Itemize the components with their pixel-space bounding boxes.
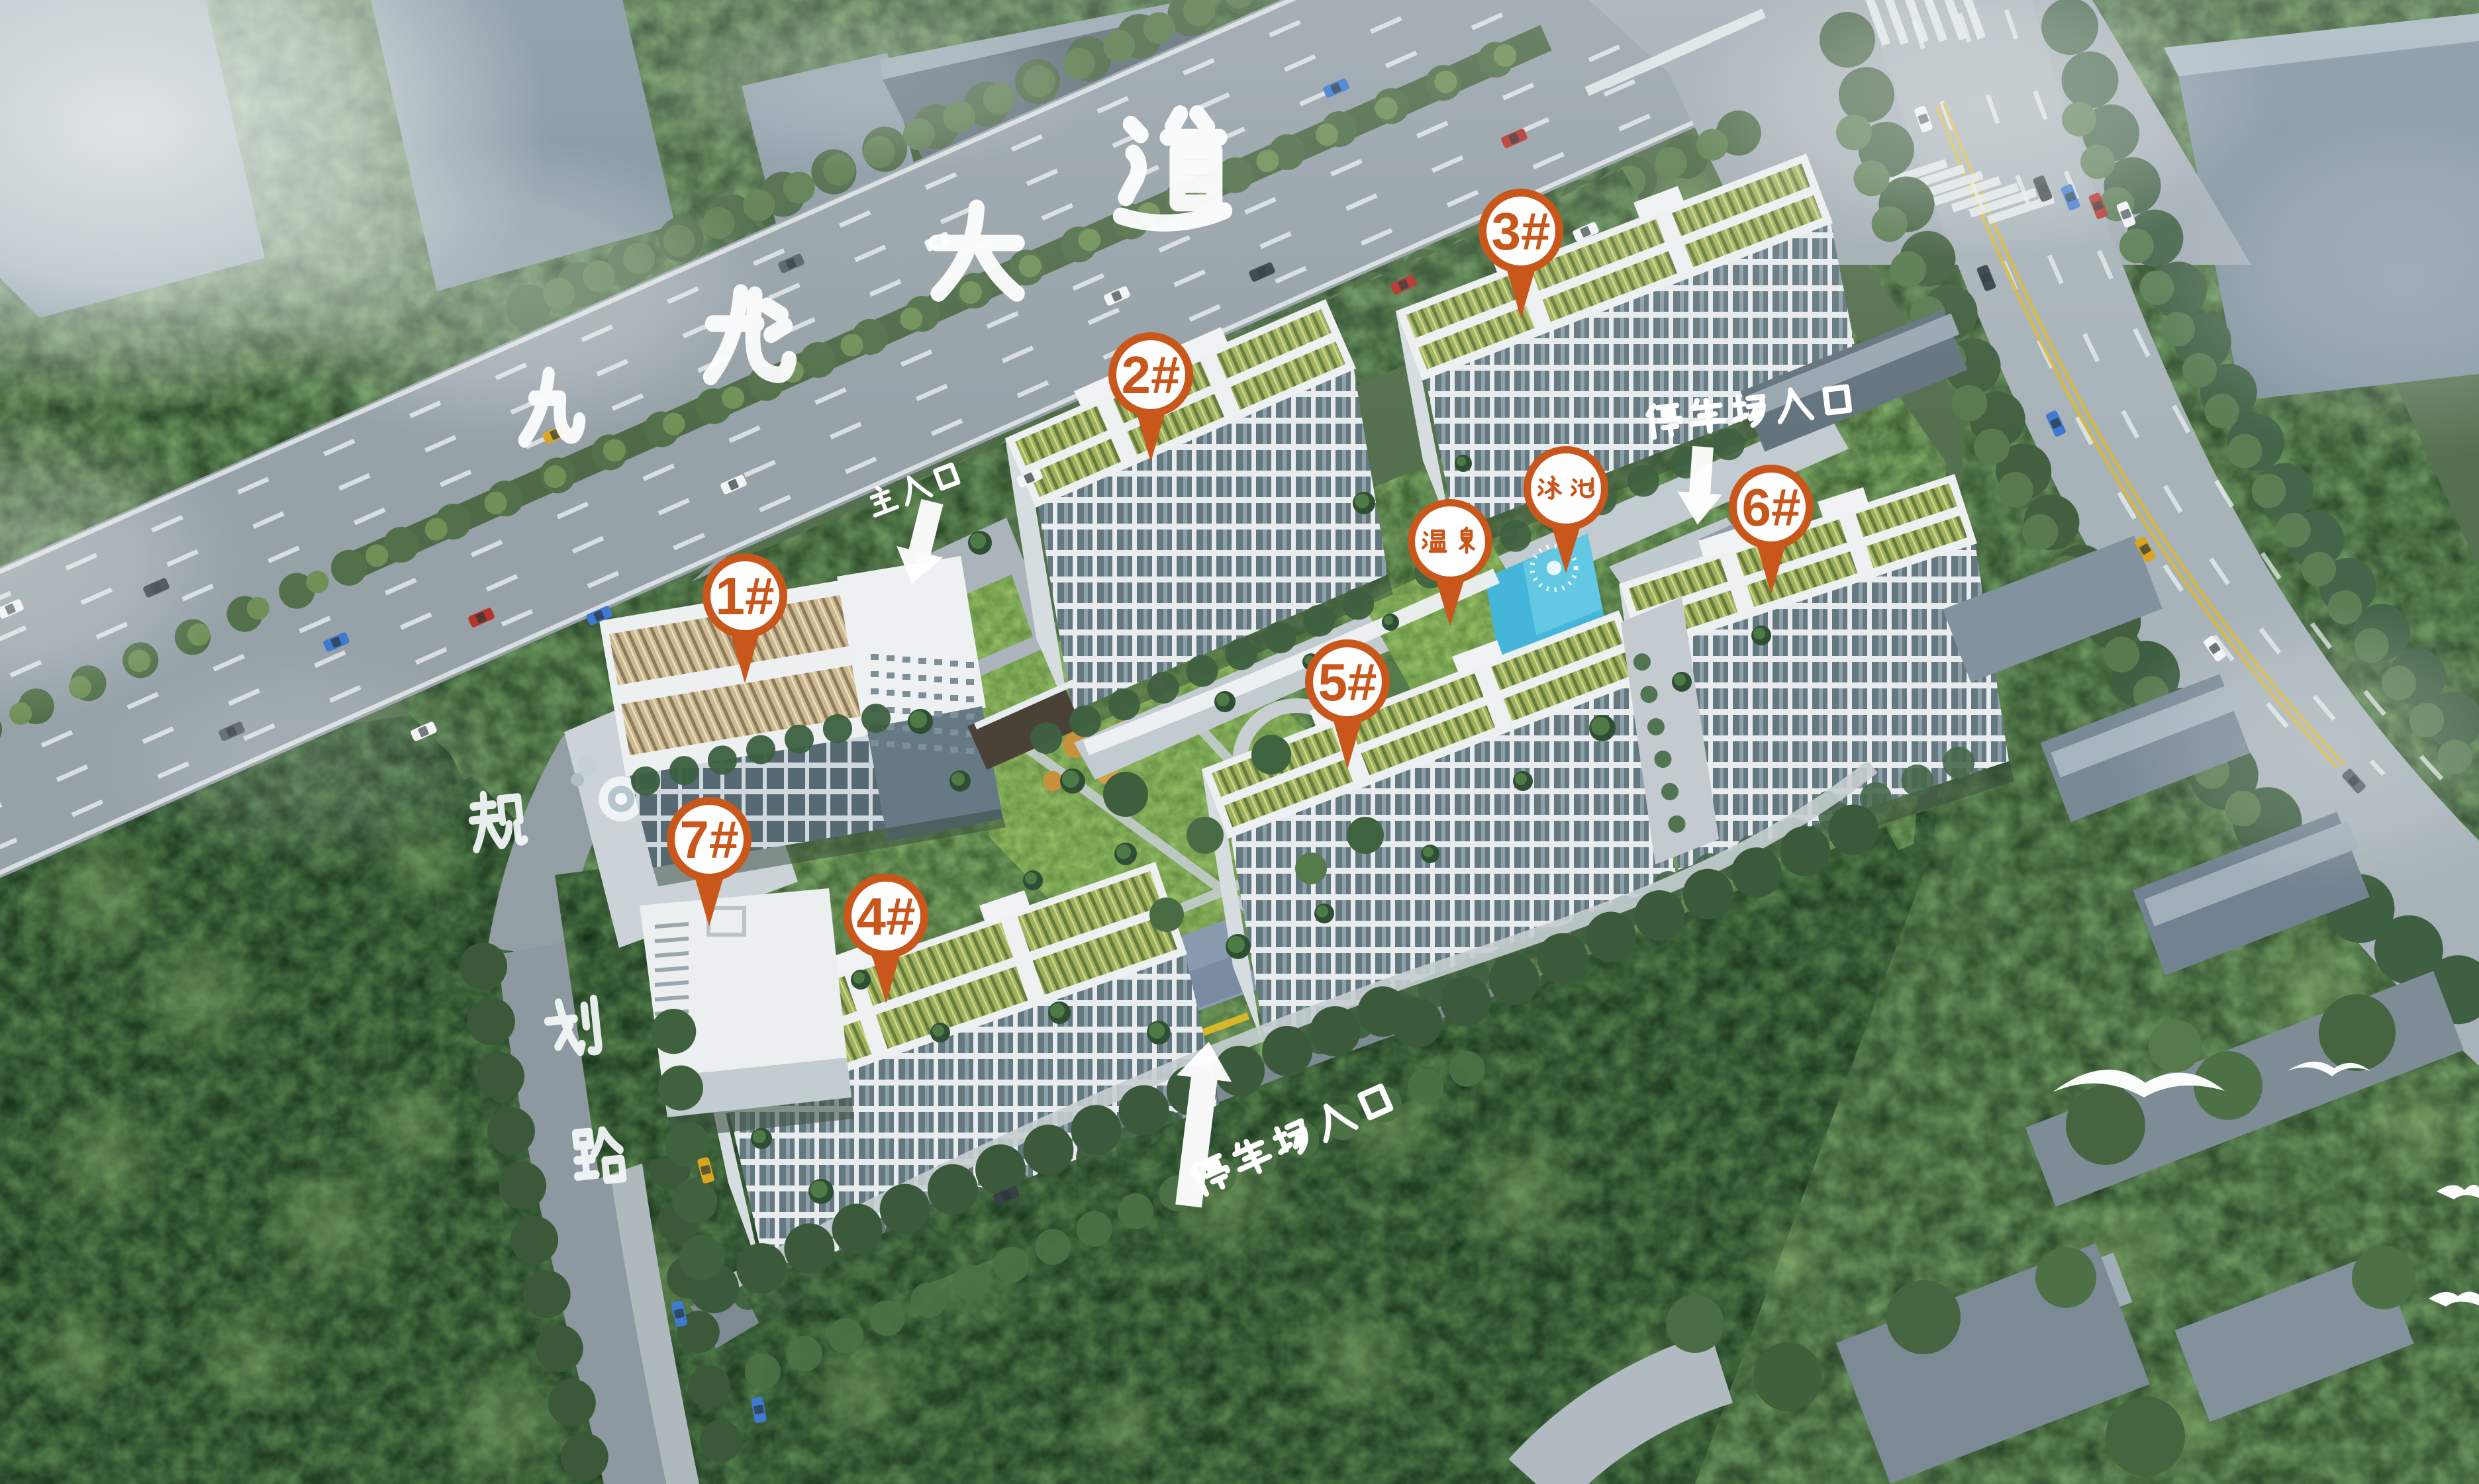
svg-text:2#: 2#	[1122, 346, 1181, 404]
svg-text:7#: 7#	[680, 810, 739, 869]
svg-text:5#: 5#	[1318, 653, 1377, 712]
svg-text:6#: 6#	[1742, 478, 1801, 537]
svg-text:3#: 3#	[1492, 202, 1551, 261]
svg-text:1#: 1#	[716, 567, 775, 626]
svg-text:4#: 4#	[857, 887, 916, 946]
